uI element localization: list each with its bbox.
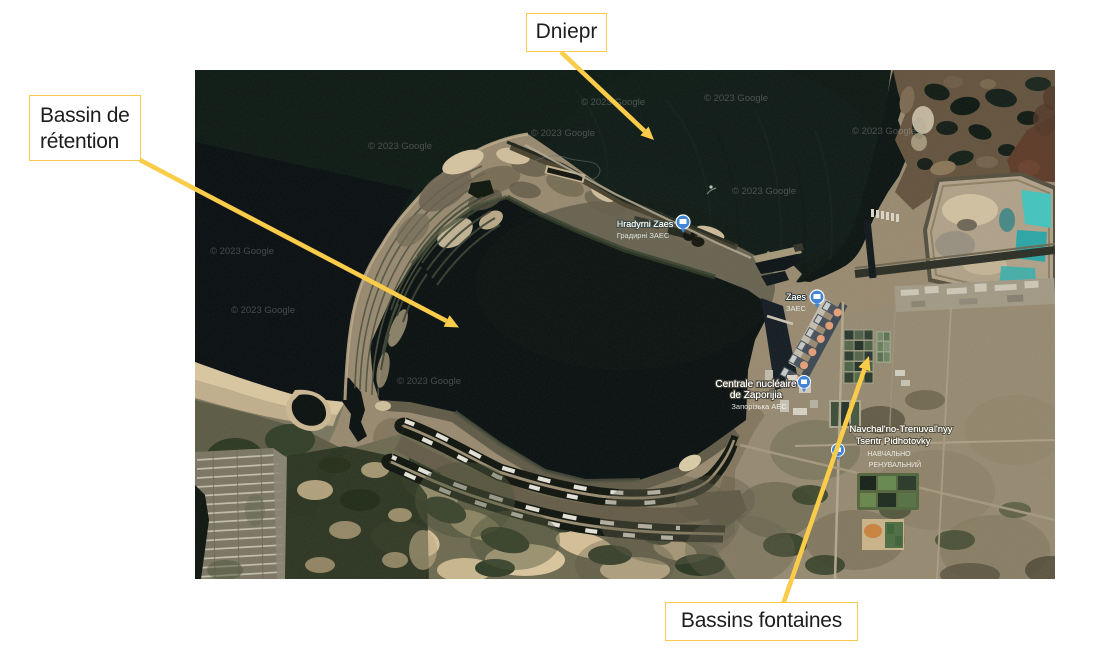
svg-text:de Zaporijia: de Zaporijia <box>730 390 783 401</box>
svg-text:Navchal'no-Trenuval'nyy: Navchal'no-Trenuval'nyy <box>849 424 952 435</box>
svg-text:© 2023 Google: © 2023 Google <box>581 97 645 108</box>
svg-text:© 2023 Google: © 2023 Google <box>531 128 595 139</box>
svg-text:Hradyrni Zaes: Hradyrni Zaes <box>617 219 674 229</box>
svg-text:© 2023 Google: © 2023 Google <box>397 376 461 387</box>
svg-text:Tsentr Pidhotovky: Tsentr Pidhotovky <box>856 436 931 447</box>
svg-text:© 2023 Google: © 2023 Google <box>210 246 274 257</box>
svg-text:ЗАЕС: ЗАЕС <box>786 304 807 313</box>
svg-text:© 2023 Google: © 2023 Google <box>704 93 768 104</box>
svg-text:© 2023 Google: © 2023 Google <box>852 126 916 137</box>
svg-text:© 2023 Google: © 2023 Google <box>368 141 432 152</box>
svg-text:© 2023 Google: © 2023 Google <box>732 186 796 197</box>
svg-text:Запорізька АЕС: Запорізька АЕС <box>731 402 787 411</box>
svg-text:Centrale nucléaire: Centrale nucléaire <box>715 379 797 390</box>
svg-text:Zaes: Zaes <box>786 292 807 302</box>
svg-text:НАВЧАЛЬНО: НАВЧАЛЬНО <box>867 451 911 458</box>
svg-text:Градирні ЗАЕС: Градирні ЗАЕС <box>617 231 670 240</box>
svg-text:© 2023 Google: © 2023 Google <box>231 305 295 316</box>
svg-text:РЕНУВАЛЬНИЙ: РЕНУВАЛЬНИЙ <box>869 460 921 469</box>
